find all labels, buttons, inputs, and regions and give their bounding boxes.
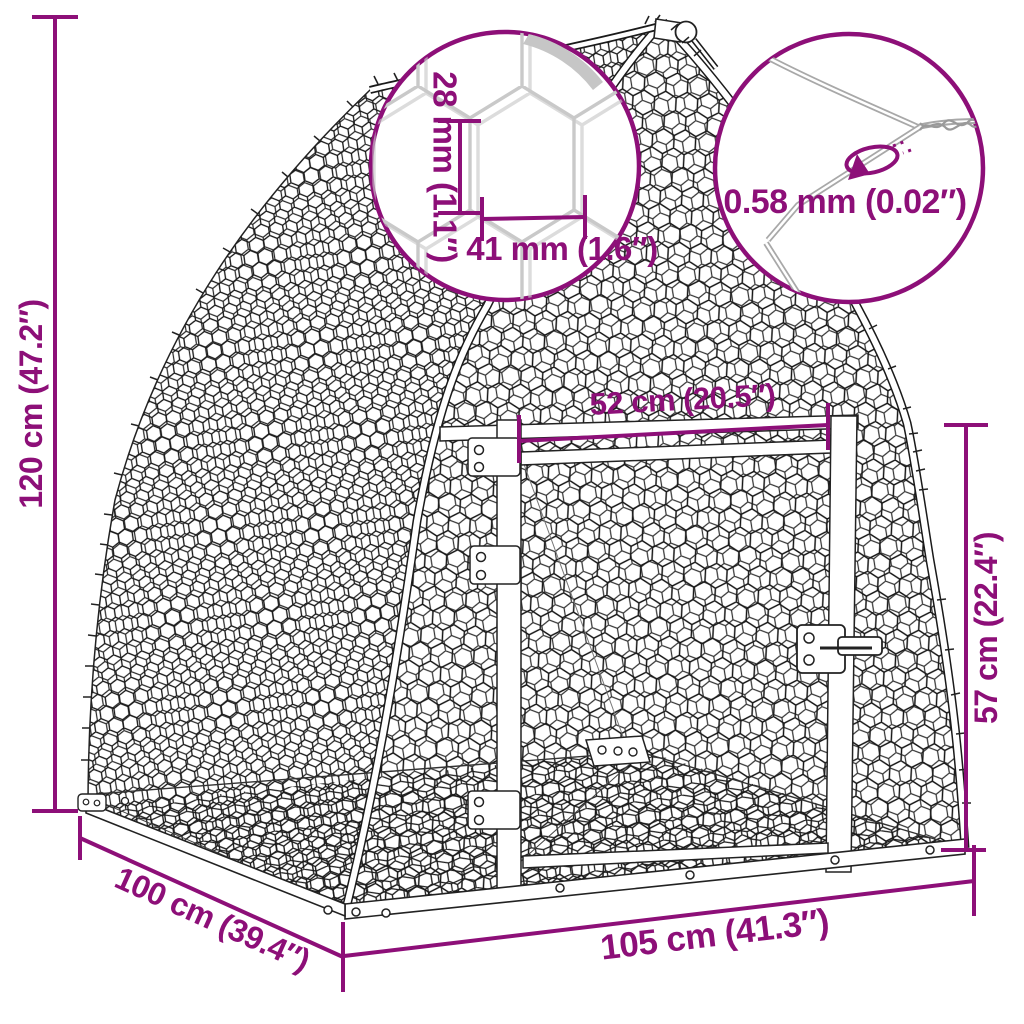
svg-text:28 mm (1.1″): 28 mm (1.1″) xyxy=(426,71,463,262)
svg-text:0.58 mm (0.02″): 0.58 mm (0.02″) xyxy=(723,183,966,221)
svg-text:120 cm (47.2″): 120 cm (47.2″) xyxy=(13,299,49,508)
svg-text:57 cm (22.4″): 57 cm (22.4″) xyxy=(968,532,1004,724)
svg-text:41 mm (1.6″): 41 mm (1.6″) xyxy=(466,230,657,267)
